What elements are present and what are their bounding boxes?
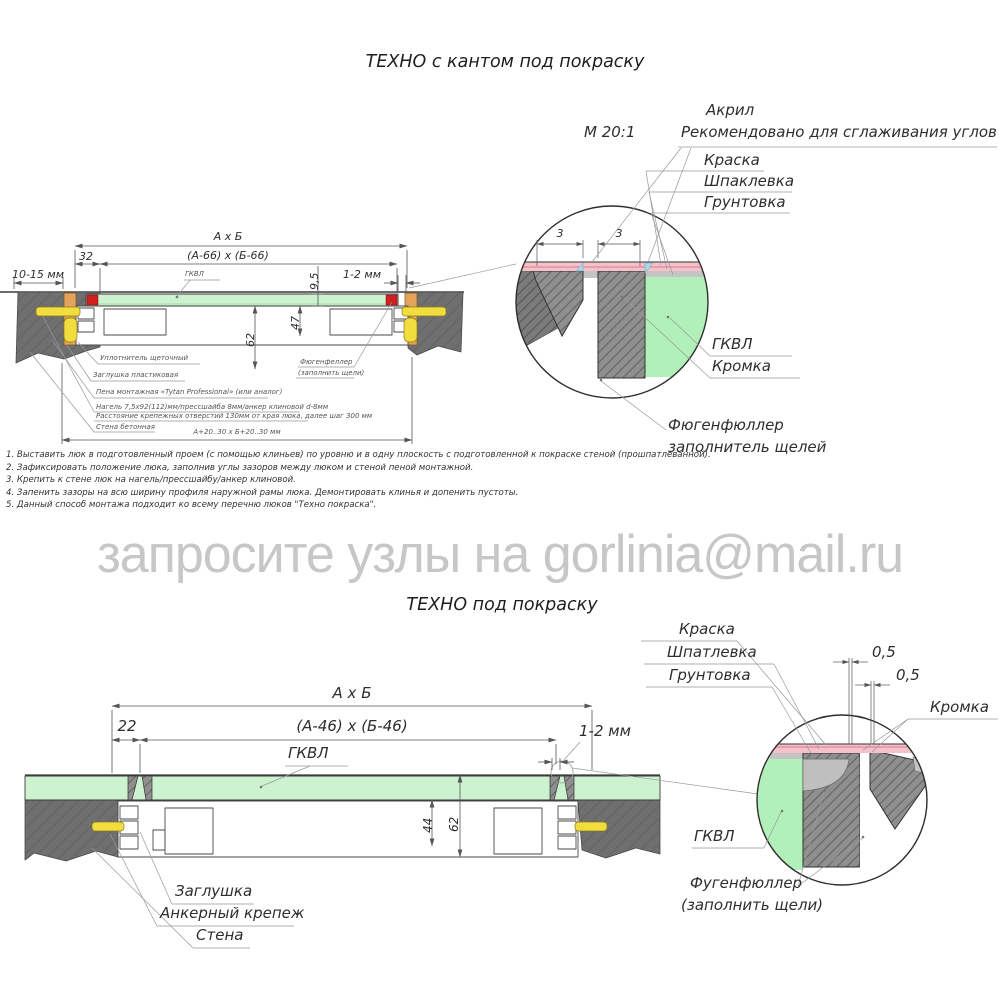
dim-05a: 0,5: [872, 645, 896, 661]
instruction-list: 1. Выставить люк в подготовленный проем …: [6, 450, 666, 513]
instruction-item: 5. Данный способ монтажа подходит ко все…: [6, 500, 666, 510]
callout-gruntovka: Грунтовка: [704, 195, 786, 211]
anchor-bolt-left-bottom: [92, 822, 124, 831]
scale-label: М 20:1: [584, 125, 635, 141]
dim-22: 22: [117, 719, 136, 735]
top-cross-section: [0, 292, 464, 363]
callout-fugen1-bottom: Фугенфюллер: [690, 876, 802, 892]
instruction-item: 3. Крепить к стене люк на нагель/прессша…: [6, 475, 666, 485]
dim-32: 32: [79, 251, 93, 263]
dim-bottom-top-drawing: А+20..30 х Б+20..30 мм: [193, 429, 280, 436]
detail-kromka-label: Кромка: [712, 359, 771, 375]
dim-gap-bottom: 1-2 мм: [579, 724, 631, 740]
note-uplotnitel: Уплотнитель щеточный: [100, 355, 188, 362]
detail-gkvl-label: ГКВЛ: [712, 337, 753, 353]
instruction-item: 4. Запенить зазоры на всю ширину профиля…: [6, 488, 666, 498]
callout-akril-note: Рекомендовано для сглаживания углов: [681, 125, 997, 141]
note-fugen2: (заполнить щели): [298, 370, 364, 377]
callout-kromka-bottom: Кромка: [930, 700, 989, 716]
label-anker: Анкерный крепеж: [160, 906, 304, 922]
dim-inner-top: (А-66) х (Б-66): [187, 250, 269, 262]
detail-fugen-label1: Фюгенфюллер: [668, 418, 784, 434]
bottom-cross-section: [25, 761, 758, 861]
callout-shpaklevka: Шпаклевка: [704, 174, 794, 190]
callout-akril: Акрил: [706, 103, 754, 119]
note-nagel2: Расстояние крепежных отверстий 130мм от …: [96, 413, 372, 420]
note-fugen1: Фюгенфеллер: [300, 359, 352, 366]
dim-inner-bottom: (А-46) х (Б-46): [296, 719, 407, 735]
detail-dim-right: 3: [616, 228, 623, 240]
callout-kraska-bottom: Краска: [679, 622, 735, 638]
note-nagel1: Нагель 7,5х92(112)мм/прессшайба 8мм/анке…: [96, 404, 328, 411]
dim-95: 9,5: [309, 273, 321, 291]
detail-gkvl-green: [645, 277, 709, 377]
callout-kraska: Краска: [704, 153, 760, 169]
frame-profile: [76, 306, 410, 345]
detail-dim-left: 3: [557, 228, 564, 240]
callout-gruntovka-bottom: Грунтовка: [669, 668, 751, 684]
frame-profile-bottom: [118, 801, 578, 857]
callout-fugen2-bottom: (заполнить щели): [681, 898, 823, 914]
detail2-edge-right: [870, 750, 928, 829]
dim-44: 44: [422, 818, 435, 833]
dim-gap-top: 1-2 мм: [343, 269, 381, 281]
note-pena: Пена монтажная «Tytan Professional» (или…: [96, 389, 282, 396]
detail-edge-right: [598, 271, 645, 378]
top-callout-leaders: [592, 147, 997, 275]
anchor-bolt-right-bottom: [575, 822, 607, 831]
callout-gkvl-bottom: ГКВЛ: [694, 829, 735, 845]
dim-axb-bottom: А х Б: [333, 686, 372, 702]
callout-shpatlevka: Шпатлевка: [667, 645, 757, 661]
gkvl-label-bottom: ГКВЛ: [288, 746, 329, 762]
label-stena: Стена: [196, 928, 243, 944]
dim-05b: 0,5: [896, 668, 920, 684]
note-zaglushka: Заглушка пластиковая: [93, 372, 178, 379]
label-zaglushka: Заглушка: [175, 884, 252, 900]
gkvl-small-label: ГКВЛ: [185, 271, 204, 278]
bottom-title: ТЕХНО под покраску: [406, 596, 597, 614]
instruction-item: 2. Зафиксировать положение люка, заполни…: [6, 463, 666, 473]
watermark-email: запросите узлы на gorlinia@mail.ru: [97, 524, 903, 585]
dim-axb-top: А х Б: [214, 231, 243, 243]
dim-62-top: 62: [245, 333, 257, 347]
drawing-sheet: ТЕХНО с кантом под покраску М 20:1 Акрил…: [0, 0, 1000, 1000]
dim-wall-offset: 10-15 мм: [12, 269, 64, 281]
note-stena: Стена бетонная: [96, 424, 155, 431]
seal-left: [87, 295, 98, 305]
detail2-paint-band: [757, 744, 928, 753]
instruction-item: 1. Выставить люк в подготовленный проем …: [6, 450, 666, 460]
dim-47: 47: [290, 316, 302, 330]
top-title: ТЕХНО с кантом под покраску: [366, 53, 645, 71]
dim-62-bottom: 62: [448, 817, 461, 832]
